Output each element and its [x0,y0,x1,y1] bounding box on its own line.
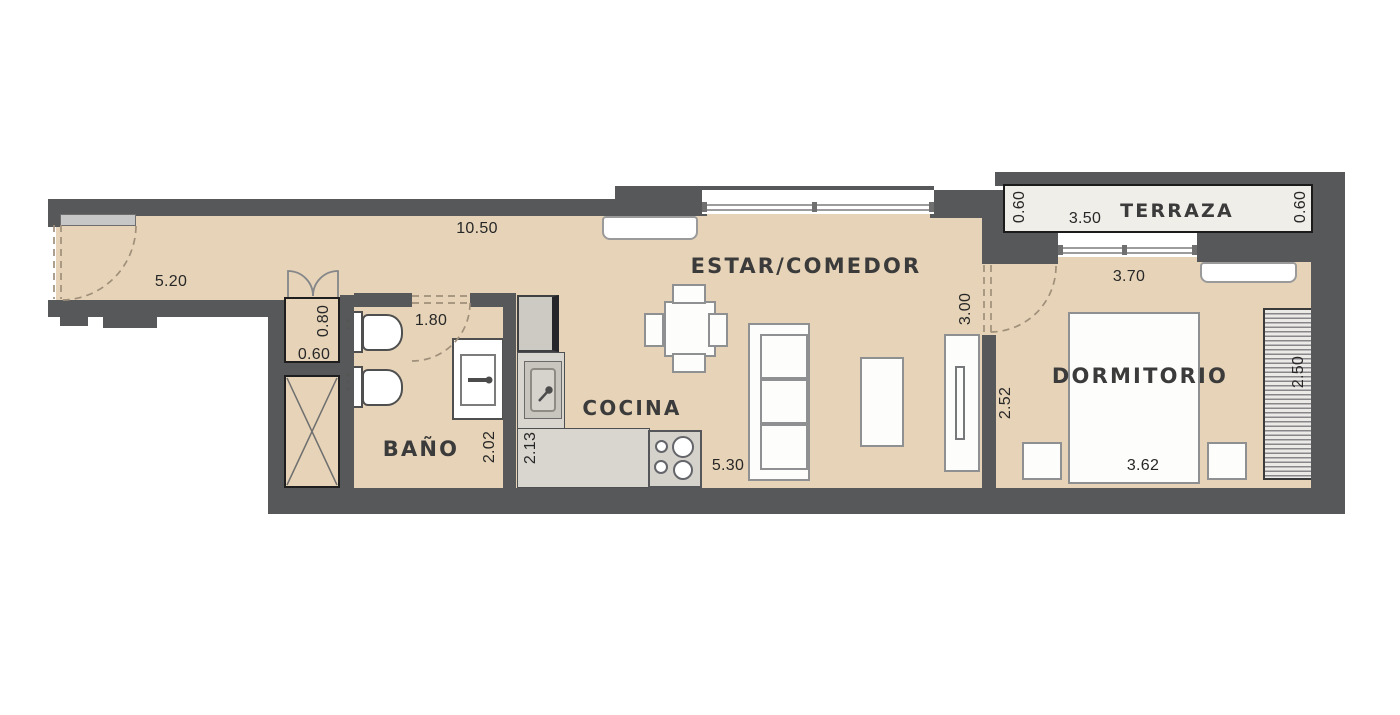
sofa-cushion-3 [760,424,808,470]
wall-living-bedroom-divider [982,335,996,492]
bedroom-window-mullion-right [1192,245,1197,255]
wall-entry-bump-left [60,314,88,326]
entry-door-leaf [60,214,136,226]
wall-top-step [615,186,707,216]
dim-bedroom-window-width: 3.70 [1113,268,1145,286]
dim-kitchen-depth: 2.13 [522,432,540,464]
living-window-glass [702,204,934,211]
coffee-table [860,357,904,447]
dim-terraza-depth-right: 0.60 [1292,191,1310,223]
bidet-bowl-icon [362,369,403,406]
wall-bath-top-left [354,293,412,307]
sofa-cushion-1 [760,334,808,379]
dim-bath-depth: 2.02 [481,431,499,463]
dim-bedroom-door-width: 3.00 [957,293,975,325]
sofa-cushion-2 [760,379,808,424]
wall-entry-stub [48,199,60,227]
wall-bottom [268,488,1345,514]
living-window-mullion-left [702,202,707,212]
cooktop-burner-small-top [655,440,668,453]
floor-plan: 5.20 10.50 0.80 0.60 1.80 2.02 2.13 5.30… [0,0,1400,715]
bedroom-window [1058,233,1197,257]
cooktop-burner-large-top [672,436,694,458]
room-label-dormitorio: DORMITORIO [1052,364,1228,388]
room-label-estar-comedor: ESTAR/COMEDOR [691,254,922,278]
toilet-bowl-icon [362,314,403,351]
bedroom-window-mullion-mid [1122,245,1127,255]
room-label-bano: BAÑO [383,437,460,461]
dining-chair-top [672,284,706,304]
room-label-cocina: COCINA [582,396,681,420]
wall-entry-bump-mid [103,314,157,328]
wardrobe [1263,308,1313,480]
dim-living-strip-length: 10.50 [456,220,498,238]
dim-bath-width: 1.80 [415,312,447,330]
dim-bedroom-depth: 2.52 [997,387,1015,419]
wall-shaft-right [340,295,354,488]
dim-entry-hall-length: 5.20 [155,273,187,291]
wall-right [1311,172,1345,512]
dining-chair-bottom [672,353,706,373]
bedroom-ac-unit [1200,262,1297,283]
wall-right-of-window [930,190,1005,218]
cooktop-burner-small-bottom [654,460,668,474]
bedroom-window-mullion-left [1058,245,1063,255]
wall-bath-top-right [470,293,506,307]
vanity-sink-icon [460,354,496,406]
shaft-box [284,375,340,488]
wall-bath-right [503,293,516,488]
wall-below-terraza-right [1197,233,1315,262]
nightstand-left [1022,442,1062,480]
dim-closet-width: 0.60 [298,346,330,364]
nightstand-right [1207,442,1247,480]
dim-terraza-depth-left: 0.60 [1011,191,1029,223]
kitchen-sink-basin [530,368,556,412]
bedroom-window-glass [1058,247,1197,254]
living-window [702,190,934,214]
living-window-mullion-mid [812,202,817,212]
wall-closet-shaft-divider [284,363,340,375]
dim-closet-depth: 0.80 [315,305,333,337]
dining-chair-right [708,313,728,347]
dim-kitchen-living-length: 5.30 [712,457,744,475]
dim-terraza-width: 3.50 [1069,210,1101,228]
living-ac-unit [602,216,698,240]
living-window-mullion-right [929,202,934,212]
dim-bed-wall-length: 3.62 [1127,457,1159,475]
kitchen-fridge [517,295,559,352]
wall-shaft-left [268,300,284,512]
tv [955,366,965,440]
dining-chair-left [644,313,664,347]
room-label-terraza: TERRAZA [1120,200,1234,222]
dim-wardrobe-length: 2.50 [1290,356,1308,388]
cooktop-burner-large-bottom [673,460,693,480]
